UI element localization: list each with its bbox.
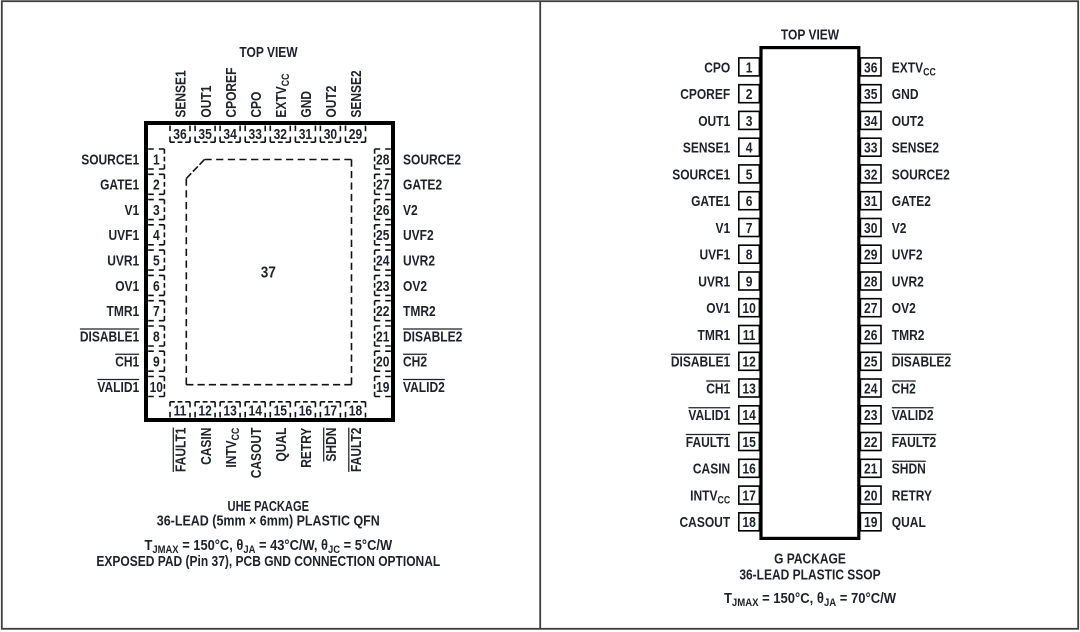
svg-text:SENSE1: SENSE1 <box>173 70 190 117</box>
svg-text:20: 20 <box>864 488 877 505</box>
svg-text:SOURCE1: SOURCE1 <box>672 166 730 183</box>
svg-text:DISABLE1: DISABLE1 <box>80 328 139 345</box>
svg-text:TMR2: TMR2 <box>892 327 925 344</box>
svg-text:TOP VIEW: TOP VIEW <box>239 44 298 61</box>
svg-text:G PACKAGE: G PACKAGE <box>774 551 846 568</box>
svg-text:28: 28 <box>864 273 877 290</box>
svg-text:GATE1: GATE1 <box>100 177 139 194</box>
svg-text:GND: GND <box>298 91 315 118</box>
svg-text:CASIN: CASIN <box>198 428 215 465</box>
svg-text:16: 16 <box>742 461 755 478</box>
svg-text:SENSE1: SENSE1 <box>683 140 730 157</box>
svg-text:OV1: OV1 <box>706 300 730 317</box>
svg-text:CPO: CPO <box>248 91 265 117</box>
svg-text:SENSE2: SENSE2 <box>892 140 939 157</box>
svg-text:VALID1: VALID1 <box>688 407 730 424</box>
svg-text:FAULT1: FAULT1 <box>173 428 190 472</box>
svg-text:32: 32 <box>274 126 287 143</box>
svg-text:12: 12 <box>198 402 211 419</box>
svg-text:V1: V1 <box>125 202 140 219</box>
svg-text:15: 15 <box>274 402 287 419</box>
svg-text:OV1: OV1 <box>115 278 139 295</box>
svg-text:8: 8 <box>153 328 160 345</box>
svg-text:SENSE2: SENSE2 <box>348 70 365 117</box>
svg-text:25: 25 <box>376 227 389 244</box>
svg-text:33: 33 <box>864 140 877 157</box>
svg-text:UVR1: UVR1 <box>698 273 730 290</box>
svg-text:3: 3 <box>746 113 753 130</box>
svg-text:QUAL: QUAL <box>273 428 290 462</box>
svg-text:36-LEAD PLASTIC SSOP: 36-LEAD PLASTIC SSOP <box>739 567 880 584</box>
svg-text:34: 34 <box>864 113 878 130</box>
svg-text:CPO: CPO <box>704 59 730 76</box>
svg-text:SHDN: SHDN <box>892 461 926 478</box>
svg-text:UVR1: UVR1 <box>107 253 139 270</box>
svg-text:30: 30 <box>864 220 877 237</box>
svg-text:12: 12 <box>742 354 755 371</box>
svg-text:28: 28 <box>376 151 389 168</box>
svg-text:SOURCE2: SOURCE2 <box>892 166 950 183</box>
svg-text:TMR1: TMR1 <box>107 303 140 320</box>
svg-text:VALID2: VALID2 <box>403 379 445 396</box>
svg-text:10: 10 <box>150 379 163 396</box>
svg-text:UVF1: UVF1 <box>700 247 731 264</box>
svg-text:1: 1 <box>153 151 160 168</box>
svg-text:7: 7 <box>153 303 160 320</box>
svg-text:36: 36 <box>864 59 877 76</box>
svg-text:CASIN: CASIN <box>693 461 730 478</box>
svg-text:8: 8 <box>746 247 753 264</box>
svg-text:5: 5 <box>746 166 753 183</box>
svg-text:18: 18 <box>349 402 362 419</box>
svg-text:13: 13 <box>742 380 755 397</box>
svg-text:32: 32 <box>864 166 877 183</box>
svg-text:TMR2: TMR2 <box>403 303 436 320</box>
svg-text:36: 36 <box>173 126 186 143</box>
svg-text:UVF1: UVF1 <box>109 227 140 244</box>
svg-text:OUT2: OUT2 <box>323 86 340 118</box>
svg-text:VALID1: VALID1 <box>97 379 139 396</box>
svg-text:27: 27 <box>864 300 877 317</box>
svg-text:SHDN: SHDN <box>323 428 340 462</box>
svg-text:11: 11 <box>174 402 187 419</box>
svg-text:11: 11 <box>743 327 756 344</box>
svg-text:2: 2 <box>746 86 753 103</box>
svg-text:GND: GND <box>892 86 919 103</box>
svg-text:V2: V2 <box>403 202 418 219</box>
svg-text:17: 17 <box>324 402 337 419</box>
svg-text:V1: V1 <box>716 220 731 237</box>
svg-text:21: 21 <box>376 328 389 345</box>
svg-text:36-LEAD (5mm × 6mm) PLASTIC QF: 36-LEAD (5mm × 6mm) PLASTIC QFN <box>157 513 380 530</box>
svg-text:22: 22 <box>864 434 877 451</box>
svg-text:OUT1: OUT1 <box>198 86 215 118</box>
svg-text:OV2: OV2 <box>403 278 427 295</box>
svg-text:FAULT2: FAULT2 <box>892 434 936 451</box>
svg-text:CPOREF: CPOREF <box>223 68 240 118</box>
svg-text:18: 18 <box>742 514 755 531</box>
svg-text:13: 13 <box>223 402 236 419</box>
svg-text:OUT2: OUT2 <box>892 113 924 130</box>
svg-text:23: 23 <box>376 278 389 295</box>
svg-text:23: 23 <box>864 407 877 424</box>
svg-text:SOURCE2: SOURCE2 <box>403 151 461 168</box>
svg-text:34: 34 <box>223 126 237 143</box>
svg-text:CASOUT: CASOUT <box>248 428 265 479</box>
svg-text:OV2: OV2 <box>892 300 916 317</box>
svg-text:10: 10 <box>742 300 755 317</box>
svg-text:19: 19 <box>376 379 389 396</box>
svg-text:14: 14 <box>742 407 756 424</box>
svg-text:3: 3 <box>153 202 160 219</box>
svg-text:6: 6 <box>153 278 160 295</box>
svg-text:6: 6 <box>746 193 753 210</box>
svg-text:26: 26 <box>864 327 877 344</box>
svg-text:GATE2: GATE2 <box>892 193 931 210</box>
svg-text:FAULT1: FAULT1 <box>686 434 730 451</box>
svg-text:CH2: CH2 <box>892 380 916 397</box>
svg-text:14: 14 <box>249 402 263 419</box>
svg-text:TOP VIEW: TOP VIEW <box>781 26 840 43</box>
svg-text:9: 9 <box>153 354 160 371</box>
svg-text:CH1: CH1 <box>706 380 730 397</box>
svg-text:CH1: CH1 <box>115 354 139 371</box>
svg-text:UVR2: UVR2 <box>892 273 924 290</box>
svg-text:37: 37 <box>261 265 276 282</box>
svg-text:RETRY: RETRY <box>892 488 932 505</box>
svg-text:15: 15 <box>742 434 755 451</box>
svg-text:30: 30 <box>324 126 337 143</box>
svg-text:FAULT2: FAULT2 <box>348 428 365 472</box>
svg-text:21: 21 <box>864 461 877 478</box>
svg-text:7: 7 <box>746 220 753 237</box>
svg-text:CASOUT: CASOUT <box>680 514 731 531</box>
svg-text:DISABLE1: DISABLE1 <box>671 354 730 371</box>
svg-text:OUT1: OUT1 <box>698 113 730 130</box>
svg-text:35: 35 <box>198 126 211 143</box>
svg-text:27: 27 <box>376 177 389 194</box>
svg-text:1: 1 <box>746 59 753 76</box>
svg-text:DISABLE2: DISABLE2 <box>892 354 951 371</box>
svg-text:25: 25 <box>864 354 877 371</box>
svg-text:GATE1: GATE1 <box>691 193 730 210</box>
svg-text:24: 24 <box>376 253 390 270</box>
svg-text:29: 29 <box>349 126 362 143</box>
svg-text:4: 4 <box>746 140 753 157</box>
svg-text:SOURCE1: SOURCE1 <box>81 151 139 168</box>
svg-text:VALID2: VALID2 <box>892 407 934 424</box>
svg-text:2: 2 <box>153 177 160 194</box>
svg-text:5: 5 <box>153 253 160 270</box>
svg-text:EXPOSED PAD (Pin 37), PCB GND: EXPOSED PAD (Pin 37), PCB GND CONNECTION… <box>96 553 440 570</box>
svg-text:UVF2: UVF2 <box>403 227 434 244</box>
svg-text:17: 17 <box>742 488 755 505</box>
svg-text:UVR2: UVR2 <box>403 253 435 270</box>
svg-text:QUAL: QUAL <box>892 514 926 531</box>
svg-text:RETRY: RETRY <box>298 428 315 468</box>
svg-text:TMR1: TMR1 <box>698 327 731 344</box>
svg-text:20: 20 <box>376 354 389 371</box>
svg-text:29: 29 <box>864 247 877 264</box>
svg-text:31: 31 <box>864 193 877 210</box>
svg-text:CH2: CH2 <box>403 354 427 371</box>
svg-text:26: 26 <box>376 202 389 219</box>
svg-text:UVF2: UVF2 <box>892 247 923 264</box>
svg-text:24: 24 <box>864 380 878 397</box>
svg-text:16: 16 <box>299 402 312 419</box>
svg-text:31: 31 <box>299 126 312 143</box>
svg-text:4: 4 <box>153 227 160 244</box>
svg-text:CPOREF: CPOREF <box>680 86 730 103</box>
svg-text:GATE2: GATE2 <box>403 177 442 194</box>
svg-text:19: 19 <box>864 514 877 531</box>
svg-text:35: 35 <box>864 86 877 103</box>
svg-text:V2: V2 <box>892 220 907 237</box>
svg-text:9: 9 <box>746 273 753 290</box>
svg-text:22: 22 <box>376 303 389 320</box>
svg-text:DISABLE2: DISABLE2 <box>403 328 462 345</box>
svg-text:33: 33 <box>249 126 262 143</box>
